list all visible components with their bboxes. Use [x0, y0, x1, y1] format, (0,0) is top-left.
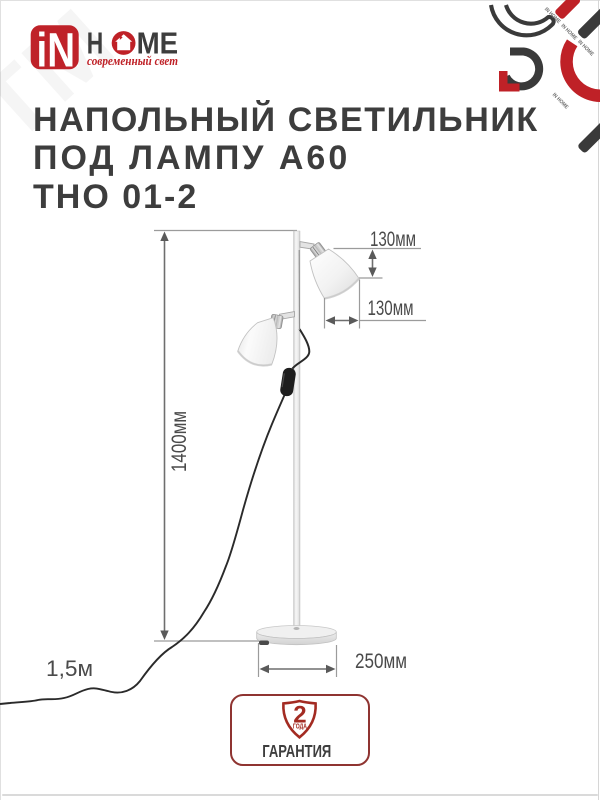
- svg-text:130мм: 130мм: [368, 297, 414, 320]
- svg-text:130мм: 130мм: [370, 228, 416, 251]
- svg-text:1400мм: 1400мм: [168, 411, 191, 472]
- svg-text:ГАРАНТИЯ: ГАРАНТИЯ: [262, 741, 331, 761]
- svg-text:250мм: 250мм: [355, 650, 407, 673]
- svg-text:ГОДА: ГОДА: [293, 721, 307, 730]
- svg-text:1,5м: 1,5м: [46, 656, 93, 681]
